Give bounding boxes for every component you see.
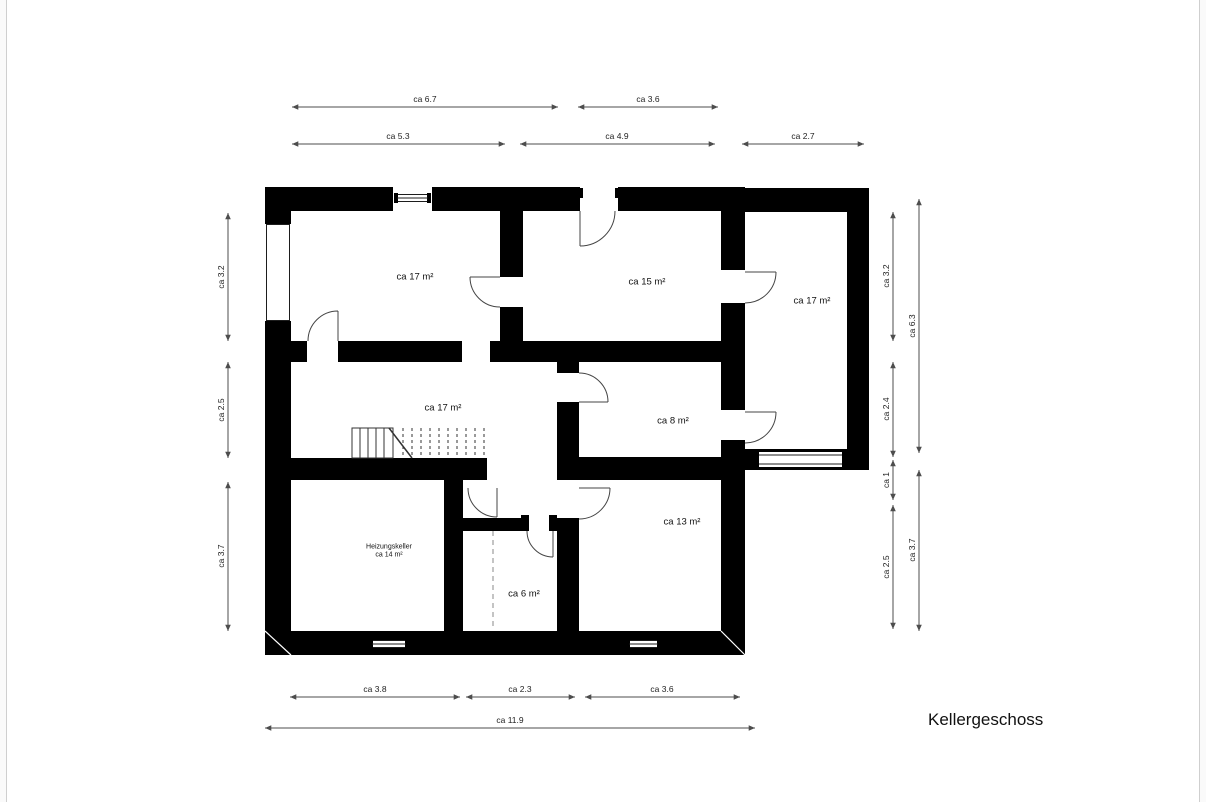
dimension-label: ca 6.3 <box>908 314 917 337</box>
door-arc <box>579 488 610 519</box>
dimension-label: ca 4.9 <box>605 132 628 141</box>
floor-plan-page: ca 6.7 ca 3.6 ca 5.3 ca 4.9 ca 2.7 ca 3.… <box>0 0 1206 802</box>
door-arc <box>745 272 776 303</box>
room-label: ca 13 m² <box>664 516 701 527</box>
floor-plan-drawing <box>0 0 1206 802</box>
dimension-label: ca 2.3 <box>508 685 531 694</box>
dimension-label: ca 3.7 <box>908 538 917 561</box>
doors <box>308 188 776 557</box>
room-label: ca 17 m² <box>397 271 434 282</box>
dimension-label: ca 2.7 <box>791 132 814 141</box>
door-arc <box>579 373 608 402</box>
floor-title: Kellergeschoss <box>928 710 1043 730</box>
door-arc <box>468 488 497 517</box>
dimension-label: ca 2.5 <box>217 398 226 421</box>
dimension-label: ca 2.4 <box>882 397 891 420</box>
stairs <box>352 428 484 458</box>
door-arc <box>580 211 615 246</box>
room-label: ca 17 m² <box>794 295 831 306</box>
dimension-label: ca 3.2 <box>882 264 891 287</box>
windows <box>267 193 848 649</box>
walls <box>265 187 869 655</box>
dimension-label: ca 3.6 <box>636 95 659 104</box>
wall-openings <box>265 187 845 467</box>
dimension-label: ca 1 <box>882 472 891 488</box>
stair-break-line <box>389 428 412 458</box>
room-label: ca 15 m² <box>629 276 666 287</box>
dimension-label: ca 6.7 <box>413 95 436 104</box>
window-left <box>267 225 290 321</box>
room-label: Heizungskeller ca 14 m² <box>366 544 412 561</box>
door-arc <box>745 412 776 443</box>
dimension-label: ca 11.9 <box>496 716 523 725</box>
door-arc <box>470 277 500 307</box>
room-label-line2: ca 14 m² <box>366 552 412 560</box>
dimension-label: ca 3.7 <box>217 544 226 567</box>
dimension-label: ca 2.5 <box>882 555 891 578</box>
dimension-label: ca 3.6 <box>650 685 673 694</box>
room-label: ca 6 m² <box>508 588 540 599</box>
room-label-line1: Heizungskeller <box>366 544 412 552</box>
door-arc <box>527 531 553 557</box>
dimension-label: ca 5.3 <box>386 132 409 141</box>
room-label: ca 17 m² <box>425 402 462 413</box>
room-label: ca 8 m² <box>657 415 689 426</box>
dimension-label: ca 3.2 <box>217 265 226 288</box>
dimension-label: ca 3.8 <box>363 685 386 694</box>
door-arc <box>308 311 338 341</box>
